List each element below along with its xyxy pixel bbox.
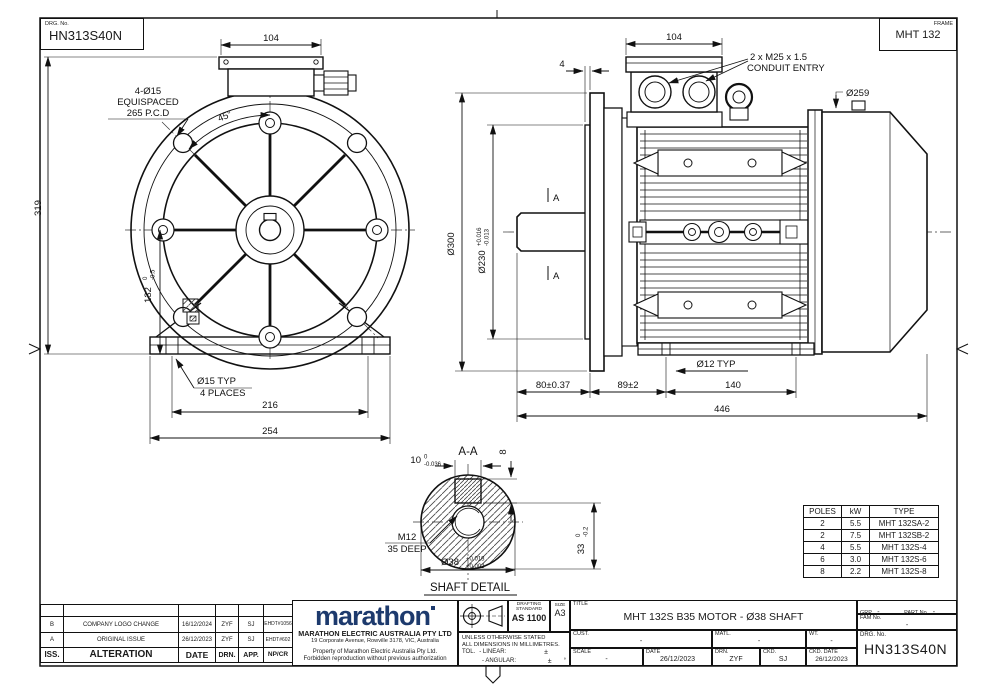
drg-label: DRG. No. (858, 631, 956, 638)
scale-box: SCALE - (570, 648, 643, 666)
table-row: 63.0MHT 132S-6 (804, 554, 939, 566)
rev-app: SJ (239, 617, 264, 633)
wt-box: WT. - (806, 630, 857, 648)
ckd-value: SJ (761, 656, 805, 663)
detail-note-tap: M12 (398, 532, 416, 543)
side-flange (590, 93, 604, 371)
detail-dim-10-tol-hi: 0 (424, 455, 428, 461)
ckd-box: CKD. SJ (760, 648, 806, 666)
angular-pm: ± (548, 658, 552, 667)
ratings-header-kw: kW (842, 506, 870, 518)
tol-label: TOL. (462, 649, 475, 658)
rev-app: SJ (239, 633, 264, 648)
detail-dim-10: 10 (410, 455, 421, 466)
section-title: A-A (458, 446, 478, 458)
drafting-standard-box: DRAFTING STANDARD AS 1100 (508, 600, 550, 632)
cell: 5.5 (842, 542, 870, 554)
rev-npcr: EHDT#1056 (264, 617, 293, 633)
company-name: MARATHON ELECTRIC AUSTRALIA PTY LTD (293, 630, 457, 638)
size-value: A3 (551, 608, 569, 618)
wt-value: - (807, 638, 856, 645)
conduit-entry-1 (639, 76, 671, 108)
company-logo-text: marathon (315, 601, 430, 631)
side-body (629, 127, 810, 343)
centering-mark-right (957, 344, 968, 354)
rev-date: 26/12/2023 (179, 633, 216, 648)
company-logo: marathon (293, 603, 457, 630)
cell: 2.2 (842, 566, 870, 578)
front-dim-132-tol-hi: 0 (143, 276, 149, 280)
rev-iss: B (41, 617, 64, 633)
cust-box: CUST. - (570, 630, 712, 648)
tolerance-note-2: ALL DIMENSIONS IN MILLIMETRES. (459, 642, 569, 649)
cell: 2 (804, 530, 842, 542)
side-dim-140: 140 (725, 380, 741, 391)
ckd-date-value: 26/12/2023 (807, 656, 856, 663)
rev-header-date: DATE (179, 648, 216, 663)
angular-label: - ANGULAR: (482, 658, 516, 667)
ratings-header-type: TYPE (870, 506, 939, 518)
rev-alteration: COMPANY LOGO CHANGE (64, 617, 179, 633)
front-dim-132-tol-lo: -0.5 (151, 269, 157, 280)
side-dim-104: 104 (666, 32, 682, 43)
rev-drn: ZYF (216, 633, 239, 648)
ratings-header-poles: POLES (804, 506, 842, 518)
lifting-eyebolt (726, 84, 752, 120)
detail-dim-33-tol-hi: 0 (576, 533, 582, 537)
front-dim-216: 216 (262, 400, 278, 411)
table-row: 27.5MHT 132SB-2 (804, 530, 939, 542)
section-marker-a-top: A (553, 193, 560, 204)
frame-value: MHT 132 (880, 27, 956, 41)
revision-row: A ORIGINAL ISSUE 26/12/2023 ZYF SJ EHDT#… (41, 633, 293, 648)
rev-iss: A (41, 633, 64, 648)
cell: MHT 132SB-2 (870, 530, 939, 542)
section-marker-a-bottom: A (553, 271, 560, 282)
company-notice: Property of Marathon Electric Australia … (293, 649, 457, 664)
side-dim-230-tol-hi: +0.016 (477, 227, 483, 246)
fam-value: - (858, 622, 956, 629)
side-dim-4: 4 (559, 59, 564, 70)
linear-label: - LINEAR: (479, 649, 506, 658)
rev-header-npcr: NP/CR (264, 648, 293, 663)
rev-header-iss: ISS. (41, 648, 64, 663)
date-box: DATE 26/12/2023 (643, 648, 712, 666)
cell: 4 (804, 542, 842, 554)
drafting-value: AS 1100 (509, 613, 549, 623)
cell: 7.5 (842, 530, 870, 542)
drg-value: HN313S40N (858, 638, 956, 657)
first-angle-projection-icon (459, 601, 507, 631)
cell: 6 (804, 554, 842, 566)
rev-drn: ZYF (216, 617, 239, 633)
table-row: 25.5MHT 132SA-2 (804, 518, 939, 530)
cell: 3.0 (842, 554, 870, 566)
rev-header-app: APP. (239, 648, 264, 663)
front-dim-319: 319 (33, 200, 44, 216)
drn-value: ZYF (713, 656, 759, 663)
table-row: 45.5MHT 132S-4 (804, 542, 939, 554)
front-terminal-box (219, 57, 356, 96)
side-dim-80: 80±0.37 (536, 380, 570, 391)
side-note-conduit-2: CONDUIT ENTRY (747, 63, 825, 74)
front-note-equispaced: EQUISPACED (117, 97, 179, 108)
revision-header-row: ISS. ALTERATION DATE DRN. APP. NP/CR (41, 648, 293, 663)
drg-no-value: HN313S40N (41, 27, 143, 43)
date-value: 26/12/2023 (644, 656, 711, 663)
frame-label: FRAME (880, 19, 956, 27)
grp-part-box: GRP. - PART No. - (857, 600, 957, 614)
company-address: 19 Corporate Avenue, Rowville 3178, VIC,… (293, 638, 457, 645)
side-dim-230: Ø230 (477, 250, 488, 273)
front-note-foot-qty: 4 PLACES (200, 388, 245, 399)
front-note-foot-hole: Ø15 TYP (197, 376, 236, 387)
detail-dim-33-tol-lo: -0.2 (584, 526, 590, 537)
drg-no-box: DRG. No. HN313S40N (40, 18, 144, 50)
drawing-canvas: 104 319 132 0 -0.5 4-Ø15 EQUISPACED 265 … (0, 0, 991, 700)
title-label: TITLE (571, 601, 856, 608)
detail-dim-8: 8 (498, 449, 509, 454)
side-shaft (517, 213, 590, 251)
side-dim-446: 446 (714, 404, 730, 415)
projection-box (458, 600, 508, 632)
revision-row: B COMPANY LOGO CHANGE 16/12/2024 ZYF SJ … (41, 617, 293, 633)
drg-no-label: DRG. No. (41, 19, 143, 27)
cable-gland (314, 75, 324, 91)
front-view: 104 319 132 0 -0.5 4-Ø15 EQUISPACED 265 … (33, 33, 415, 444)
front-dim-254: 254 (262, 426, 278, 437)
logo-trademark (431, 606, 435, 610)
detail-note-tap-depth: 35 DEEP (387, 544, 426, 555)
cust-value: - (571, 638, 711, 645)
side-dim-300: Ø300 (446, 232, 457, 255)
drg-box: DRG. No. HN313S40N (857, 630, 957, 666)
company-block: marathon MARATHON ELECTRIC AUSTRALIA PTY… (292, 600, 458, 666)
matl-box: MATL. - (712, 630, 806, 648)
cell: MHT 132S-8 (870, 566, 939, 578)
rev-date: 16/12/2024 (179, 617, 216, 633)
side-dim-230-tol-lo: -0.013 (485, 228, 491, 246)
page-title: MHT 132S B35 MOTOR - Ø38 SHAFT (571, 611, 856, 623)
centering-mark-left (29, 344, 40, 354)
size-label: SIZE (551, 601, 569, 608)
table-row: 82.2MHT 132S-8 (804, 566, 939, 578)
detail-dim-10-tol-lo: -0.036 (424, 462, 442, 468)
drn-box: DRN. ZYF (712, 648, 760, 666)
fam-box: FAM No. - (857, 614, 957, 630)
detail-dim-38-tol-lo: +0.002 (466, 564, 485, 570)
drawing-sheet: 104 319 132 0 -0.5 4-Ø15 EQUISPACED 265 … (0, 0, 991, 700)
angular-deg: ° (564, 658, 566, 667)
shaft-detail-view: A-A 10 0 -0.036 8 (385, 446, 601, 595)
rev-npcr: EHDT#602 (264, 633, 293, 648)
side-dim-259: Ø259 (846, 88, 869, 99)
tapped-hole (452, 506, 484, 538)
tolerance-note-1: UNLESS OTHERWISE STATED (459, 633, 569, 642)
tolerance-linear-row: TOL. - LINEAR: ± (459, 649, 569, 658)
cell: 5.5 (842, 518, 870, 530)
company-notice-line2: Forbidden reproduction without previous … (293, 656, 457, 664)
cell: MHT 132S-4 (870, 542, 939, 554)
conduit-entry-2 (683, 76, 715, 108)
fan-cowl (808, 101, 927, 354)
linear-pm: ± (544, 649, 548, 658)
side-note-foot-hole: Ø12 TYP (697, 359, 736, 370)
cell: 8 (804, 566, 842, 578)
front-dim-132: 132 (143, 287, 154, 303)
cell: MHT 132S-6 (870, 554, 939, 566)
title-box: TITLE MHT 132S B35 MOTOR - Ø38 SHAFT (570, 600, 857, 630)
side-view: 104 2 x M25 x 1.5 CONDUIT ENTRY Ø259 4 Ø… (446, 32, 952, 422)
cell: MHT 132SA-2 (870, 518, 939, 530)
side-dim-89: 89±2 (617, 380, 638, 391)
cell: 2 (804, 518, 842, 530)
matl-value: - (713, 638, 805, 645)
detail-dim-33: 33 (576, 544, 587, 555)
rev-header-drn: DRN. (216, 648, 239, 663)
centering-mark-bottom (486, 666, 500, 683)
rev-header-alteration: ALTERATION (64, 648, 179, 663)
side-terminal-box (626, 57, 722, 127)
rev-alteration: ORIGINAL ISSUE (64, 633, 179, 648)
keyway (455, 479, 481, 503)
detail-dim-38-tol-hi: +0.018 (466, 557, 485, 563)
front-hub (236, 196, 304, 264)
revision-table: B COMPANY LOGO CHANGE 16/12/2024 ZYF SJ … (40, 604, 293, 663)
front-note-pcd: 265 P.C.D (127, 108, 170, 119)
ckd-date-box: CKD. DATE 26/12/2023 (806, 648, 857, 666)
front-note-holes: 4-Ø15 (135, 86, 161, 97)
company-notice-line1: Property of Marathon Electric Australia … (293, 649, 457, 657)
frame-box: FRAME MHT 132 (879, 18, 957, 51)
detail-dim-38: Ø38 (441, 557, 459, 568)
tolerance-note-box: UNLESS OTHERWISE STATED ALL DIMENSIONS I… (458, 632, 570, 666)
ratings-table: POLES kW TYPE 25.5MHT 132SA-2 27.5MHT 13… (803, 505, 939, 578)
tolerance-angular-row: - ANGULAR: ± ° (459, 658, 569, 667)
front-dim-104: 104 (263, 33, 279, 44)
scale-value: - (571, 656, 642, 663)
shaft-detail-caption: SHAFT DETAIL (430, 582, 511, 594)
side-note-conduit-1: 2 x M25 x 1.5 (750, 52, 807, 63)
side-feet (638, 343, 814, 355)
size-box: SIZE A3 (550, 600, 570, 632)
